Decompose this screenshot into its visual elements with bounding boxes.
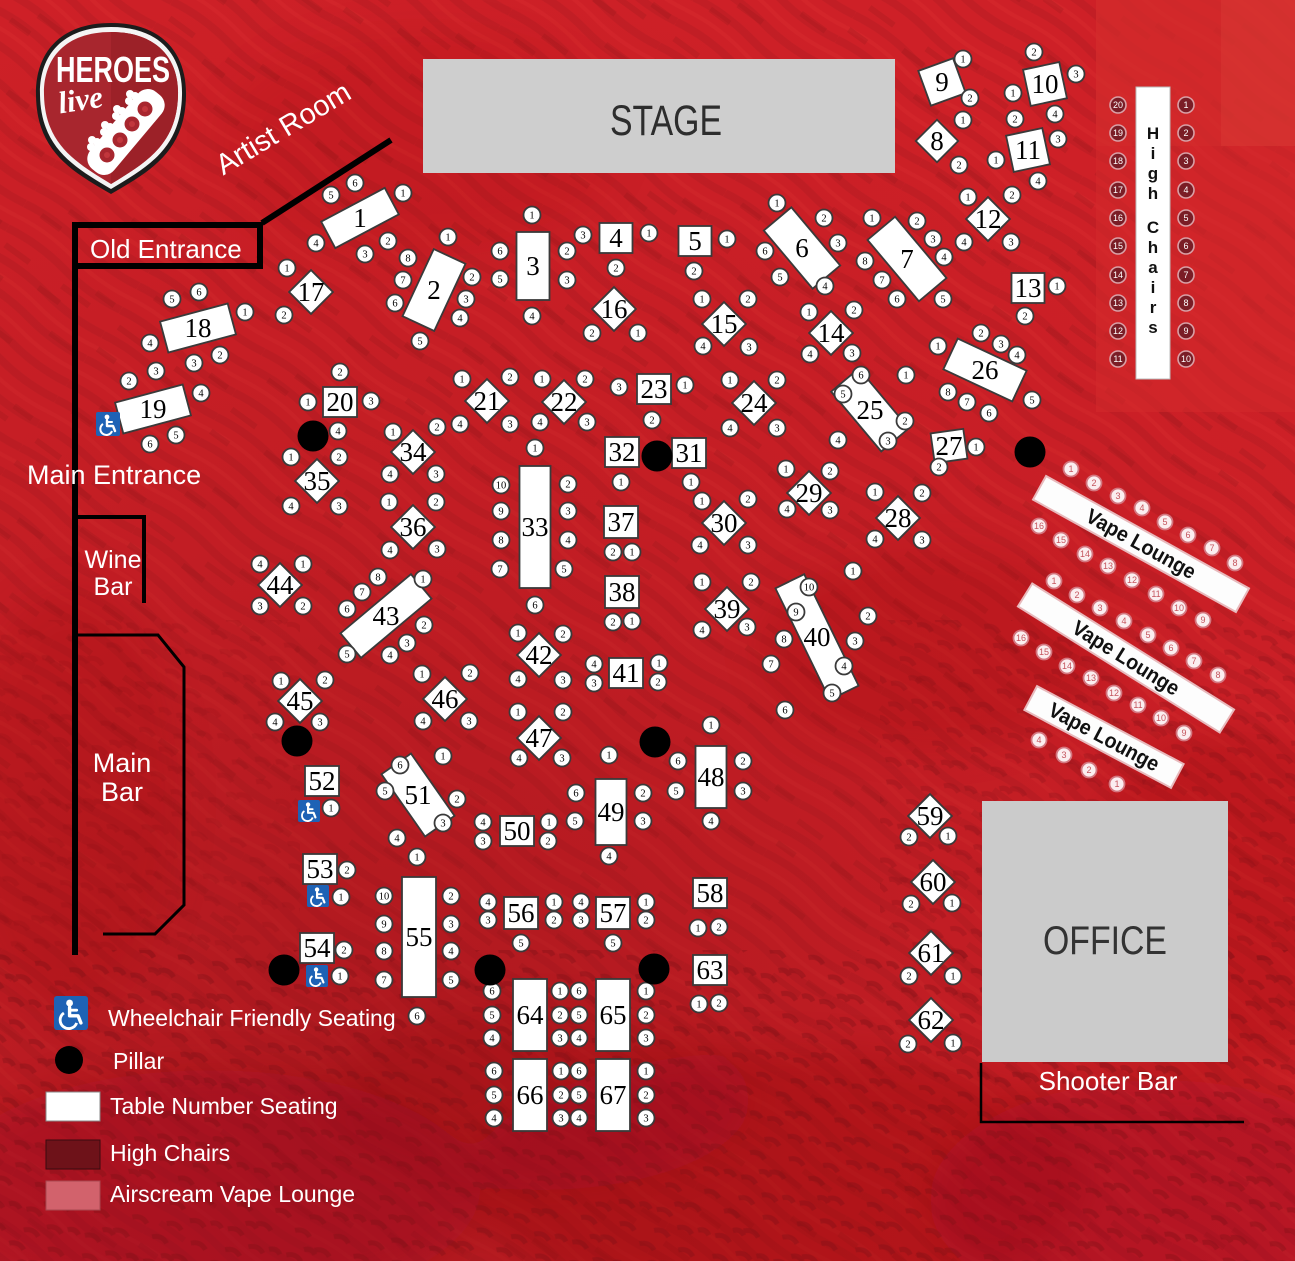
svg-text:12: 12 [1127, 575, 1137, 585]
svg-text:5: 5 [491, 1091, 496, 1102]
svg-text:6: 6 [762, 247, 767, 258]
svg-text:1: 1 [643, 1067, 648, 1078]
svg-text:8: 8 [498, 536, 503, 547]
svg-text:2: 2 [956, 161, 961, 172]
svg-text:g: g [1148, 164, 1158, 183]
svg-text:Main Entrance: Main Entrance [27, 460, 201, 490]
svg-text:12: 12 [1109, 688, 1119, 698]
svg-text:4: 4 [697, 541, 703, 552]
svg-text:4: 4 [841, 662, 847, 673]
svg-text:i: i [1151, 278, 1156, 297]
svg-text:4: 4 [727, 424, 733, 435]
svg-text:2: 2 [821, 214, 826, 225]
svg-text:8: 8 [405, 254, 410, 265]
svg-text:2: 2 [1086, 765, 1091, 775]
svg-text:30: 30 [711, 508, 738, 538]
svg-text:16: 16 [1016, 633, 1026, 643]
svg-text:3: 3 [930, 235, 935, 246]
svg-text:1: 1 [278, 677, 283, 688]
svg-text:59: 59 [917, 801, 944, 831]
svg-text:2: 2 [649, 416, 654, 427]
svg-text:1: 1 [646, 229, 651, 240]
svg-text:1: 1 [949, 899, 954, 910]
svg-text:43: 43 [373, 601, 400, 631]
svg-text:7: 7 [497, 565, 502, 576]
svg-text:3: 3 [480, 837, 485, 848]
svg-text:3: 3 [368, 397, 373, 408]
svg-text:4: 4 [387, 651, 393, 662]
svg-text:3: 3 [1097, 603, 1102, 613]
svg-text:4: 4 [708, 817, 714, 828]
svg-text:10: 10 [1174, 603, 1184, 613]
svg-text:2: 2 [613, 264, 618, 275]
svg-text:14: 14 [1113, 270, 1123, 280]
svg-text:52: 52 [309, 766, 336, 796]
svg-text:2: 2 [716, 923, 721, 934]
svg-text:3: 3 [919, 536, 924, 547]
svg-text:64: 64 [517, 1000, 545, 1030]
svg-text:34: 34 [400, 437, 428, 467]
svg-text:35: 35 [304, 466, 331, 496]
svg-text:1: 1 [419, 670, 424, 681]
svg-text:3: 3 [885, 437, 890, 448]
svg-text:2: 2 [560, 630, 565, 641]
svg-text:2: 2 [716, 999, 721, 1010]
svg-text:3: 3 [317, 718, 322, 729]
svg-text:1: 1 [872, 488, 877, 499]
svg-text:5: 5 [840, 390, 845, 401]
svg-text:1: 1 [1051, 576, 1056, 586]
svg-text:1: 1 [973, 443, 978, 454]
svg-text:6: 6 [397, 761, 402, 772]
svg-text:1: 1 [696, 1000, 701, 1011]
svg-text:3: 3 [998, 340, 1003, 351]
svg-text:2: 2 [640, 789, 645, 800]
svg-text:8: 8 [381, 947, 386, 958]
svg-text:2: 2 [865, 612, 870, 623]
svg-text:3: 3 [463, 295, 468, 306]
svg-text:i: i [1151, 144, 1156, 163]
svg-text:1: 1 [557, 987, 562, 998]
svg-text:5: 5 [688, 226, 702, 256]
svg-text:3: 3 [153, 367, 158, 378]
svg-text:2: 2 [507, 373, 512, 384]
svg-text:2: 2 [582, 375, 587, 386]
svg-text:5: 5 [328, 191, 333, 202]
svg-text:4: 4 [807, 350, 813, 361]
svg-text:1: 1 [960, 116, 965, 127]
svg-text:1: 1 [532, 444, 537, 455]
svg-text:5: 5 [561, 565, 566, 576]
svg-text:4: 4 [457, 420, 463, 431]
svg-text:1: 1 [903, 371, 908, 382]
svg-text:15: 15 [711, 309, 738, 339]
svg-text:45: 45 [287, 686, 314, 716]
svg-text:11: 11 [1113, 354, 1122, 364]
svg-text:2: 2 [919, 489, 924, 500]
svg-text:6: 6 [1183, 241, 1188, 251]
svg-text:2: 2 [558, 1091, 563, 1102]
svg-text:8: 8 [1215, 670, 1220, 680]
svg-text:9: 9 [498, 507, 503, 518]
svg-text:2: 2 [421, 621, 426, 632]
svg-text:6: 6 [352, 179, 357, 190]
svg-text:1: 1 [708, 721, 713, 732]
svg-text:10: 10 [1156, 713, 1166, 723]
svg-text:3: 3 [740, 787, 745, 798]
svg-text:3: 3 [565, 507, 570, 518]
svg-text:51: 51 [405, 780, 432, 810]
svg-text:4: 4 [387, 470, 393, 481]
svg-text:5: 5 [572, 817, 577, 828]
svg-text:5: 5 [940, 295, 945, 306]
svg-text:6: 6 [573, 789, 578, 800]
svg-text:s: s [1148, 318, 1157, 337]
svg-text:57: 57 [600, 898, 627, 928]
svg-text:2: 2 [344, 866, 349, 877]
svg-text:1: 1 [288, 453, 293, 464]
svg-text:56: 56 [508, 898, 535, 928]
svg-text:1: 1 [727, 376, 732, 387]
svg-text:4: 4 [1183, 185, 1188, 195]
svg-text:4: 4 [457, 314, 463, 325]
svg-text:4: 4 [565, 536, 571, 547]
svg-text:10: 10 [379, 892, 390, 903]
svg-text:39: 39 [714, 594, 741, 624]
svg-text:1: 1 [1068, 464, 1073, 474]
svg-text:16: 16 [1113, 213, 1123, 223]
svg-text:11: 11 [1133, 700, 1142, 710]
svg-text:5: 5 [777, 273, 782, 284]
svg-text:8: 8 [1183, 298, 1188, 308]
svg-text:4: 4 [822, 282, 828, 293]
svg-text:Old Entrance: Old Entrance [90, 234, 242, 264]
svg-text:4: 4 [576, 1034, 582, 1045]
svg-text:24: 24 [741, 388, 769, 418]
svg-text:2: 2 [1009, 191, 1014, 202]
svg-text:4: 4 [1036, 735, 1041, 745]
svg-text:2: 2 [1031, 48, 1036, 59]
svg-text:2: 2 [467, 669, 472, 680]
svg-text:6: 6 [532, 601, 537, 612]
svg-text:7: 7 [1183, 270, 1188, 280]
svg-text:3: 3 [1073, 70, 1078, 81]
svg-text:STAGE: STAGE [610, 97, 722, 145]
svg-text:4: 4 [576, 1114, 582, 1125]
svg-text:4: 4 [394, 834, 400, 845]
svg-text:4: 4 [288, 502, 294, 513]
svg-text:1: 1 [242, 308, 247, 319]
svg-text:3: 3 [336, 502, 341, 513]
svg-text:55: 55 [406, 922, 433, 952]
svg-text:7: 7 [964, 398, 969, 409]
svg-text:1: 1 [993, 156, 998, 167]
svg-text:13: 13 [1103, 561, 1113, 571]
svg-text:17: 17 [1113, 185, 1123, 195]
svg-text:2: 2 [565, 480, 570, 491]
svg-text:2: 2 [433, 498, 438, 509]
svg-text:3: 3 [560, 676, 565, 687]
svg-text:Main: Main [93, 748, 152, 778]
svg-text:1: 1 [656, 659, 661, 670]
svg-text:63: 63 [697, 955, 724, 985]
svg-text:5: 5 [1183, 213, 1188, 223]
svg-text:1: 1 [558, 1067, 563, 1078]
svg-text:9: 9 [1181, 728, 1186, 738]
svg-text:3: 3 [835, 239, 840, 250]
svg-text:a: a [1148, 258, 1158, 277]
svg-text:5: 5 [610, 939, 615, 950]
svg-text:1: 1 [643, 987, 648, 998]
svg-text:3: 3 [746, 343, 751, 354]
svg-text:2: 2 [385, 237, 390, 248]
svg-text:4: 4 [961, 238, 967, 249]
svg-text:3: 3 [616, 383, 621, 394]
svg-text:15: 15 [1056, 535, 1066, 545]
svg-text:1: 1 [305, 398, 310, 409]
svg-text:3: 3 [1008, 238, 1013, 249]
svg-text:2: 2 [610, 618, 615, 629]
svg-text:2: 2 [643, 916, 648, 927]
svg-text:6: 6 [491, 1067, 496, 1078]
svg-text:1: 1 [515, 629, 520, 640]
svg-text:48: 48 [698, 762, 725, 792]
svg-text:9: 9 [381, 920, 386, 931]
svg-text:32: 32 [609, 437, 636, 467]
svg-text:3: 3 [558, 1114, 563, 1125]
svg-text:4: 4 [609, 223, 623, 253]
svg-text:1: 1 [699, 295, 704, 306]
svg-text:Table Number Seating: Table Number Seating [110, 1093, 338, 1119]
svg-text:7: 7 [381, 976, 386, 987]
svg-text:6: 6 [986, 409, 991, 420]
svg-text:2: 2 [341, 946, 346, 957]
svg-text:54: 54 [304, 933, 332, 963]
svg-text:4: 4 [480, 818, 486, 829]
svg-text:3: 3 [466, 717, 471, 728]
svg-text:2: 2 [545, 837, 550, 848]
svg-text:3: 3 [849, 349, 854, 360]
svg-text:8: 8 [781, 635, 786, 646]
svg-text:Airscream Vape Lounge: Airscream Vape Lounge [110, 1181, 355, 1207]
svg-text:2: 2 [1183, 128, 1188, 138]
svg-text:14: 14 [1062, 661, 1072, 671]
svg-text:2: 2 [322, 676, 327, 687]
svg-text:2: 2 [337, 368, 342, 379]
svg-text:4: 4 [700, 342, 706, 353]
svg-text:2: 2 [745, 495, 750, 506]
svg-text:3: 3 [404, 639, 409, 650]
svg-text:47: 47 [526, 723, 553, 753]
svg-text:9: 9 [935, 67, 949, 97]
svg-text:6: 6 [894, 295, 899, 306]
svg-text:6: 6 [147, 440, 152, 451]
svg-text:6: 6 [576, 1067, 581, 1078]
svg-text:1: 1 [353, 203, 367, 233]
svg-text:6: 6 [782, 706, 787, 717]
svg-text:4: 4 [420, 717, 426, 728]
svg-text:14: 14 [1080, 549, 1090, 559]
svg-text:14: 14 [818, 318, 846, 348]
svg-text:1: 1 [1054, 282, 1059, 293]
svg-text:3: 3 [526, 251, 540, 281]
svg-text:1: 1 [635, 329, 640, 340]
svg-text:2: 2 [643, 1091, 648, 1102]
svg-text:2: 2 [905, 1040, 910, 1051]
svg-text:2: 2 [906, 833, 911, 844]
svg-text:1: 1 [400, 189, 405, 200]
svg-text:1: 1 [629, 617, 634, 628]
svg-text:3: 3 [440, 819, 445, 830]
svg-text:4: 4 [515, 675, 521, 686]
svg-text:5: 5 [1029, 396, 1034, 407]
svg-text:2: 2 [454, 795, 459, 806]
svg-text:31: 31 [676, 438, 703, 468]
svg-text:1: 1 [1183, 100, 1188, 110]
svg-text:4: 4 [1139, 503, 1144, 513]
svg-text:2: 2 [914, 217, 919, 228]
svg-text:8: 8 [862, 257, 867, 268]
svg-text:4: 4 [489, 1034, 495, 1045]
svg-text:6: 6 [1185, 530, 1190, 540]
svg-text:1: 1 [945, 832, 950, 843]
svg-text:h: h [1148, 238, 1158, 257]
svg-text:2: 2 [748, 578, 753, 589]
svg-text:1: 1 [935, 342, 940, 353]
svg-text:4: 4 [272, 718, 278, 729]
svg-text:65: 65 [600, 1000, 627, 1030]
svg-text:6: 6 [795, 233, 809, 263]
svg-text:18: 18 [1113, 156, 1123, 166]
svg-text:2: 2 [691, 267, 696, 278]
svg-text:1: 1 [682, 381, 687, 392]
svg-text:1: 1 [386, 498, 391, 509]
svg-text:7: 7 [900, 244, 914, 274]
svg-text:4: 4 [1014, 351, 1020, 362]
svg-text:6: 6 [489, 987, 494, 998]
svg-text:17: 17 [298, 277, 325, 307]
svg-text:8: 8 [945, 388, 950, 399]
svg-text:16: 16 [601, 294, 628, 324]
svg-text:1: 1 [414, 853, 419, 864]
svg-text:42: 42 [526, 640, 553, 670]
svg-text:3: 3 [1061, 750, 1066, 760]
svg-text:10: 10 [804, 583, 815, 594]
svg-text:1: 1 [960, 55, 965, 66]
svg-text:4: 4 [448, 947, 454, 958]
svg-text:58: 58 [697, 878, 724, 908]
svg-text:13: 13 [1086, 673, 1096, 683]
svg-text:3: 3 [643, 1034, 648, 1045]
svg-text:2: 2 [564, 247, 569, 258]
svg-text:2: 2 [281, 311, 286, 322]
svg-text:5: 5 [1145, 630, 1150, 640]
svg-text:6: 6 [392, 299, 397, 310]
svg-text:9: 9 [1183, 326, 1188, 336]
svg-text:C: C [1147, 218, 1159, 237]
svg-text:3: 3 [580, 231, 585, 242]
svg-text:2: 2 [427, 275, 441, 305]
svg-text:1: 1 [850, 567, 855, 578]
svg-text:2: 2 [434, 423, 439, 434]
svg-text:4: 4 [485, 898, 491, 909]
svg-text:5: 5 [576, 1091, 581, 1102]
svg-text:3: 3 [564, 276, 569, 287]
svg-text:38: 38 [609, 577, 636, 607]
svg-text:5: 5 [173, 431, 178, 442]
svg-text:25: 25 [857, 395, 884, 425]
svg-text:2: 2 [827, 467, 832, 478]
svg-text:2: 2 [448, 892, 453, 903]
svg-text:2: 2 [557, 1011, 562, 1022]
svg-text:60: 60 [920, 867, 947, 897]
svg-text:9: 9 [1200, 615, 1205, 625]
svg-text:50: 50 [504, 816, 531, 846]
svg-text:h: h [1148, 184, 1158, 203]
svg-text:2: 2 [774, 376, 779, 387]
svg-text:High Chairs: High Chairs [110, 1140, 230, 1166]
svg-text:6: 6 [414, 1012, 419, 1023]
svg-text:5: 5 [673, 787, 678, 798]
svg-text:1: 1 [699, 578, 704, 589]
svg-text:1: 1 [806, 308, 811, 319]
svg-text:6: 6 [576, 987, 581, 998]
svg-text:3: 3 [191, 359, 196, 370]
svg-text:61: 61 [918, 938, 945, 968]
svg-text:2: 2 [589, 329, 594, 340]
svg-text:8: 8 [375, 573, 380, 584]
svg-text:1: 1 [950, 1039, 955, 1050]
svg-text:20: 20 [327, 387, 354, 417]
svg-text:4: 4 [529, 312, 535, 323]
svg-text:7: 7 [768, 660, 773, 671]
svg-text:3: 3 [852, 637, 857, 648]
svg-text:18: 18 [185, 313, 212, 343]
svg-text:1: 1 [618, 478, 623, 489]
svg-text:15: 15 [1113, 241, 1123, 251]
svg-text:4: 4 [198, 389, 204, 400]
svg-text:37: 37 [608, 507, 635, 537]
svg-text:16: 16 [1034, 521, 1044, 531]
svg-text:2: 2 [217, 351, 222, 362]
svg-text:49: 49 [598, 797, 625, 827]
svg-text:6: 6 [344, 605, 349, 616]
svg-text:4: 4 [1035, 177, 1041, 188]
svg-text:1: 1 [338, 893, 343, 904]
svg-text:2: 2 [655, 678, 660, 689]
svg-text:1: 1 [1010, 89, 1015, 100]
svg-text:13: 13 [1113, 298, 1123, 308]
svg-text:2: 2 [560, 708, 565, 719]
svg-text:Wine: Wine [85, 546, 142, 574]
svg-text:4: 4 [537, 418, 543, 429]
svg-text:3: 3 [584, 418, 589, 429]
svg-text:66: 66 [517, 1080, 544, 1110]
svg-text:live: live [56, 79, 106, 121]
svg-text:5: 5 [518, 939, 523, 950]
svg-text:3: 3 [1055, 135, 1060, 146]
svg-text:3: 3 [640, 817, 645, 828]
svg-text:3: 3 [591, 679, 596, 690]
svg-text:1: 1 [337, 972, 342, 983]
svg-text:22: 22 [551, 387, 578, 417]
svg-text:4: 4 [699, 626, 705, 637]
svg-text:2: 2 [551, 916, 556, 927]
svg-text:4: 4 [257, 560, 263, 571]
svg-text:3: 3 [578, 916, 583, 927]
svg-text:3: 3 [744, 623, 749, 634]
svg-text:1: 1 [440, 752, 445, 763]
